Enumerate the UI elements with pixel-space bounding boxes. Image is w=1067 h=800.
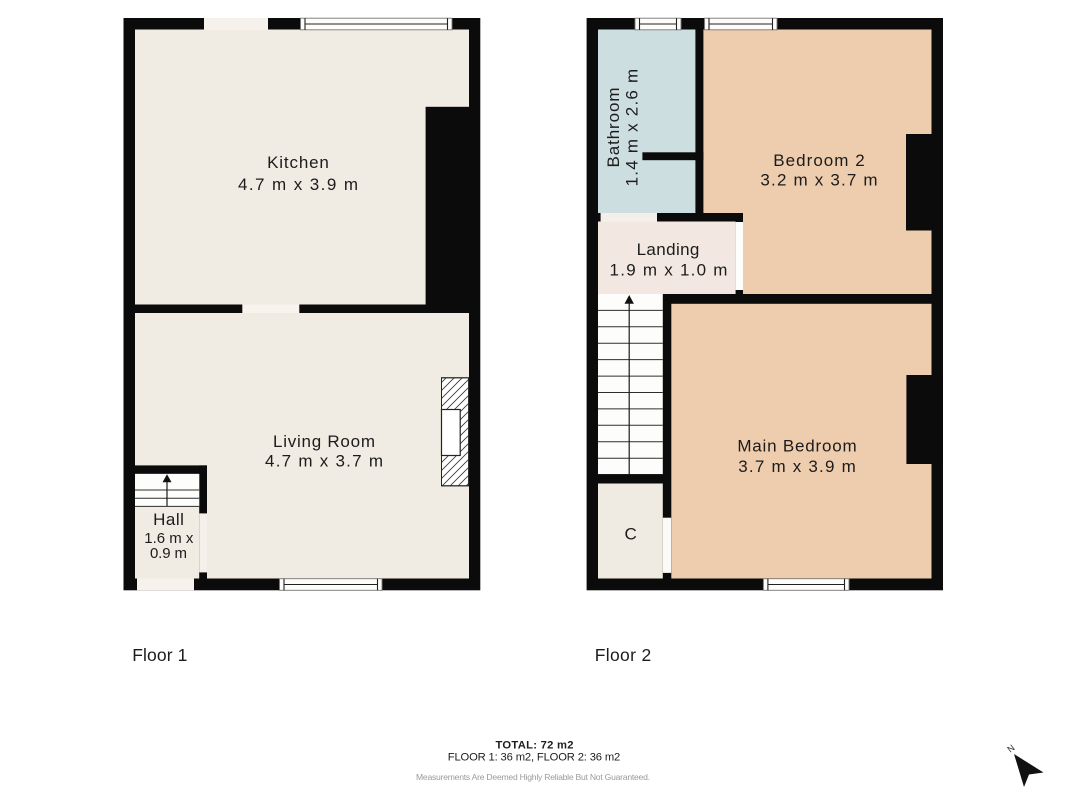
svg-text:4.7 m x 3.9 m: 4.7 m x 3.9 m — [238, 175, 358, 194]
svg-text:4.7 m x 3.7 m: 4.7 m x 3.7 m — [265, 451, 383, 470]
svg-text:Landing: Landing — [637, 240, 700, 259]
svg-text:TOTAL: 72 m2: TOTAL: 72 m2 — [496, 740, 574, 752]
svg-text:3.7 m x 3.9 m: 3.7 m x 3.9 m — [738, 457, 856, 476]
svg-text:Living Room: Living Room — [273, 432, 375, 451]
svg-text:Bedroom 2: Bedroom 2 — [773, 151, 864, 170]
svg-text:Floor 1: Floor 1 — [132, 645, 187, 665]
svg-text:1.9 m x 1.0 m: 1.9 m x 1.0 m — [610, 261, 728, 280]
svg-text:Kitchen: Kitchen — [267, 153, 329, 172]
svg-text:3.2 m x 3.7 m: 3.2 m x 3.7 m — [760, 171, 877, 190]
svg-text:Floor 2: Floor 2 — [595, 645, 652, 665]
svg-text:1.4 m x 2.6 m: 1.4 m x 2.6 m — [623, 69, 642, 187]
svg-text:Bathroom: Bathroom — [604, 88, 623, 168]
svg-text:Main Bedroom: Main Bedroom — [737, 437, 856, 456]
svg-text:C: C — [625, 525, 637, 544]
svg-text:0.9 m: 0.9 m — [150, 545, 187, 562]
svg-text:Hall: Hall — [153, 510, 184, 529]
svg-text:FLOOR 1: 36 m2, FLOOR 2: 36 m2: FLOOR 1: 36 m2, FLOOR 2: 36 m2 — [448, 752, 621, 764]
svg-text:Measurements Are Deemed Highly: Measurements Are Deemed Highly Reliable … — [416, 772, 650, 782]
